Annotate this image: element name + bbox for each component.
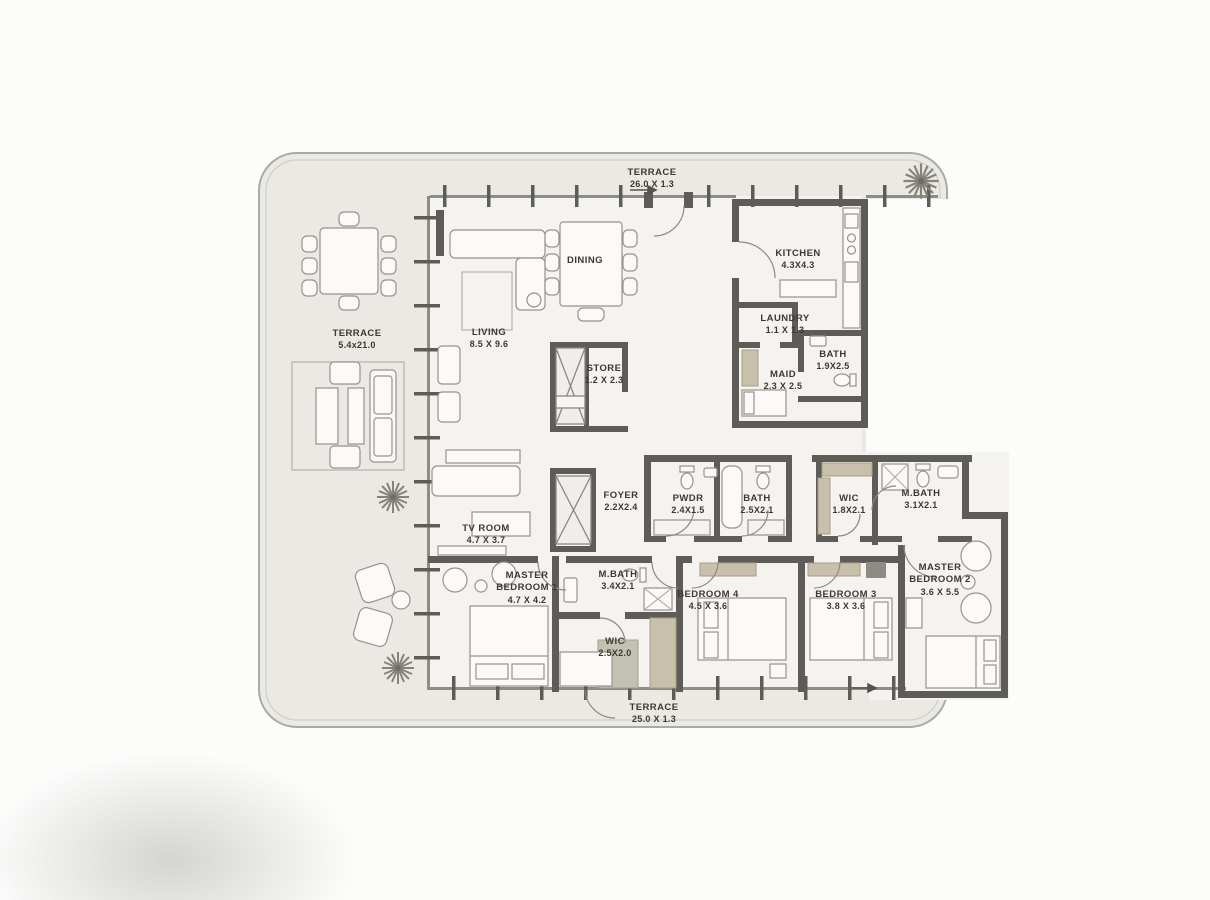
room-label-wic-2: WIC 1.8X2.1 xyxy=(819,493,879,517)
room-name: M.BATH xyxy=(583,569,653,581)
room-label-living: LIVING 8.5 X 9.6 xyxy=(444,327,534,351)
room-label-master-bedroom-1: MASTER BEDROOM 1 4.7 X 4.2 xyxy=(484,570,570,606)
room-name: DINING xyxy=(545,255,625,267)
floor-plan-canvas: TERRACE 26.0 X 1.3 TERRACE 5.4x21.0 TERR… xyxy=(0,0,1210,900)
room-label-store: STORE 1.2 X 2.3 xyxy=(572,363,636,387)
room-label-pwdr: PWDR 2.4X1.5 xyxy=(656,493,720,517)
room-name: FOYER xyxy=(586,490,656,502)
room-dims: 26.0 X 1.3 xyxy=(592,179,712,191)
room-dims: 1.1 X 1.3 xyxy=(745,325,825,337)
bedroom3-cabinet xyxy=(866,562,886,578)
room-dims: 4.5 X 3.6 xyxy=(666,601,750,613)
room-label-bedroom-4: BEDROOM 4 4.5 X 3.6 xyxy=(666,589,750,613)
room-dims: 3.4X2.1 xyxy=(583,581,653,593)
room-label-m-bath-1: M.BATH 3.4X2.1 xyxy=(583,569,653,593)
room-dims: 2.3 X 2.5 xyxy=(743,381,823,393)
room-dims: 2.5X2.1 xyxy=(725,505,789,517)
room-name: TERRACE xyxy=(592,167,712,179)
floor-plan-drawing xyxy=(0,0,1210,900)
room-name: TV ROOM xyxy=(446,523,526,535)
room-name: M.BATH xyxy=(889,488,953,500)
room-name: LIVING xyxy=(444,327,534,339)
room-name: BATH xyxy=(725,493,789,505)
room-name: BEDROOM 4 xyxy=(666,589,750,601)
room-label-bedroom-3: BEDROOM 3 3.8 X 3.6 xyxy=(804,589,888,613)
room-name: TERRACE xyxy=(302,328,412,340)
room-name: MASTER BEDROOM 2 xyxy=(896,562,984,587)
room-name: KITCHEN xyxy=(753,248,843,260)
room-name: TERRACE xyxy=(594,702,714,714)
room-dims: 1.8X2.1 xyxy=(819,505,879,517)
room-dims: 8.5 X 9.6 xyxy=(444,339,534,351)
room-name: WIC xyxy=(819,493,879,505)
room-dims: 2.5X2.0 xyxy=(583,648,647,660)
room-dims: 1.2 X 2.3 xyxy=(572,375,636,387)
room-dims: 4.7 X 3.7 xyxy=(446,535,526,547)
room-name: MASTER BEDROOM 1 xyxy=(484,570,570,595)
room-label-bath: BATH 2.5X2.1 xyxy=(725,493,789,517)
room-label-laundry: LAUNDRY 1.1 X 1.3 xyxy=(745,313,825,337)
room-dims: 2.4X1.5 xyxy=(656,505,720,517)
room-name: PWDR xyxy=(656,493,720,505)
room-dims: 4.7 X 4.2 xyxy=(484,595,570,607)
room-dims: 3.6 X 5.5 xyxy=(896,587,984,599)
room-label-tv-room: TV ROOM 4.7 X 3.7 xyxy=(446,523,526,547)
room-name: WIC xyxy=(583,636,647,648)
room-dims: 4.3X4.3 xyxy=(753,260,843,272)
maid-bed xyxy=(742,390,786,416)
room-dims: 5.4x21.0 xyxy=(302,340,412,352)
room-dims: 3.1X2.1 xyxy=(889,500,953,512)
room-dims: 3.8 X 3.6 xyxy=(804,601,888,613)
room-name: BATH xyxy=(798,349,868,361)
room-label-m-bath-2: M.BATH 3.1X2.1 xyxy=(889,488,953,512)
room-label-foyer: FOYER 2.2X2.4 xyxy=(586,490,656,514)
room-name: STORE xyxy=(572,363,636,375)
room-label-dining: DINING xyxy=(545,255,625,267)
room-label-terrace-top: TERRACE 26.0 X 1.3 xyxy=(592,167,712,191)
room-dims: 2.2X2.4 xyxy=(586,502,656,514)
room-name: LAUNDRY xyxy=(745,313,825,325)
room-name: MAID xyxy=(743,369,823,381)
room-label-wic-1: WIC 2.5X2.0 xyxy=(583,636,647,660)
room-label-kitchen: KITCHEN 4.3X4.3 xyxy=(753,248,843,272)
room-label-terrace-bottom: TERRACE 25.0 X 1.3 xyxy=(594,702,714,726)
room-label-master-bedroom-2: MASTER BEDROOM 2 3.6 X 5.5 xyxy=(896,562,984,598)
room-label-maid: MAID 2.3 X 2.5 xyxy=(743,369,823,393)
room-dims: 25.0 X 1.3 xyxy=(594,714,714,726)
room-name: BEDROOM 3 xyxy=(804,589,888,601)
room-label-terrace-left: TERRACE 5.4x21.0 xyxy=(302,328,412,352)
